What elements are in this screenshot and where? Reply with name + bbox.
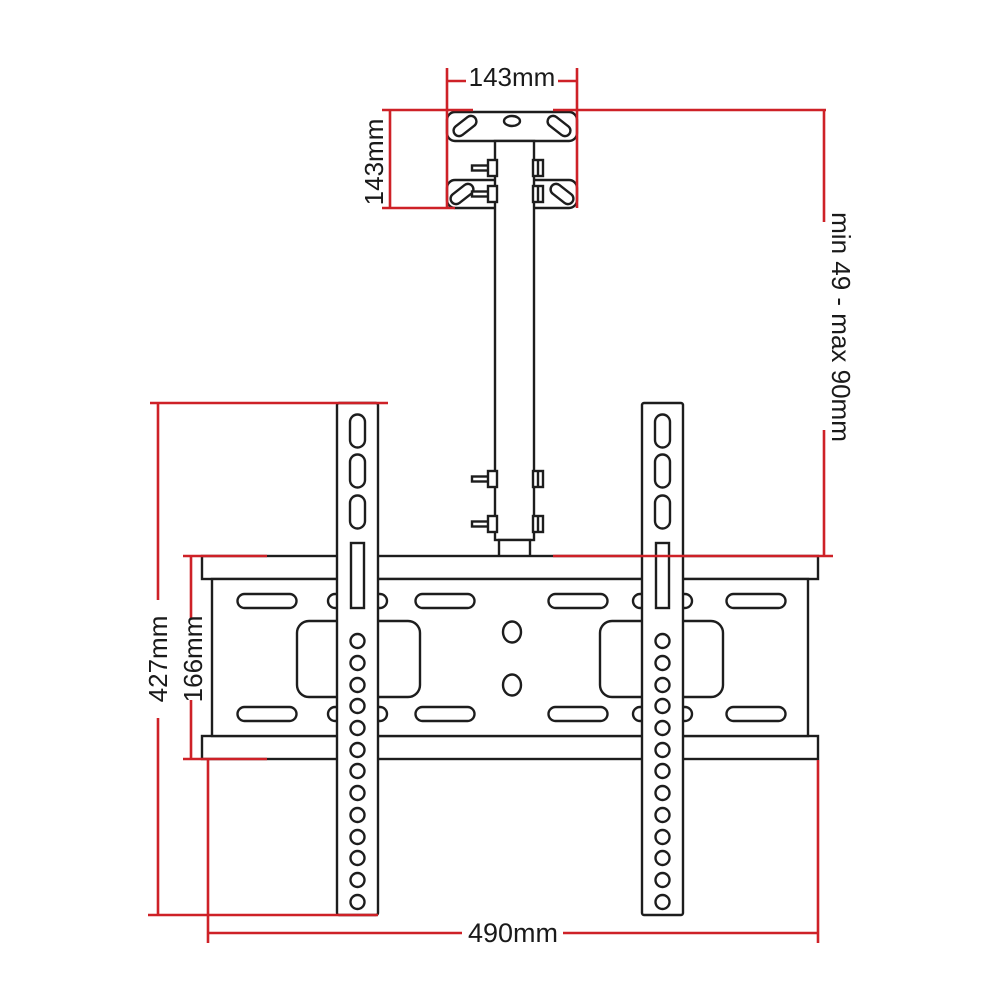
ceiling-tv-mount-diagram: 143mm 143mm min 49 - max 90mm 427mm 166m…: [0, 0, 1000, 1000]
left-tv-rail: [337, 403, 378, 915]
telescoping-pole: [495, 141, 534, 540]
center-plate: [212, 579, 808, 736]
dim-label-upper-assembly-height: 143mm: [359, 119, 389, 206]
dim-label-pole-adjustment-range: min 49 - max 90mm: [826, 212, 856, 442]
dim-label-bracket-width: 490mm: [468, 918, 558, 948]
bottom-crossbar: [202, 736, 818, 759]
dim-label-ceiling-plate-width: 143mm: [469, 62, 556, 92]
dim-label-bracket-total-height: 427mm: [143, 616, 173, 703]
right-tv-rail: [642, 403, 683, 915]
diagram-canvas: 143mm 143mm min 49 - max 90mm 427mm 166m…: [0, 0, 1000, 1000]
mount-structure: [202, 112, 818, 915]
dim-label-center-plate-height: 166mm: [178, 616, 208, 703]
top-crossbar: [202, 556, 818, 579]
pole-collar: [499, 540, 530, 557]
